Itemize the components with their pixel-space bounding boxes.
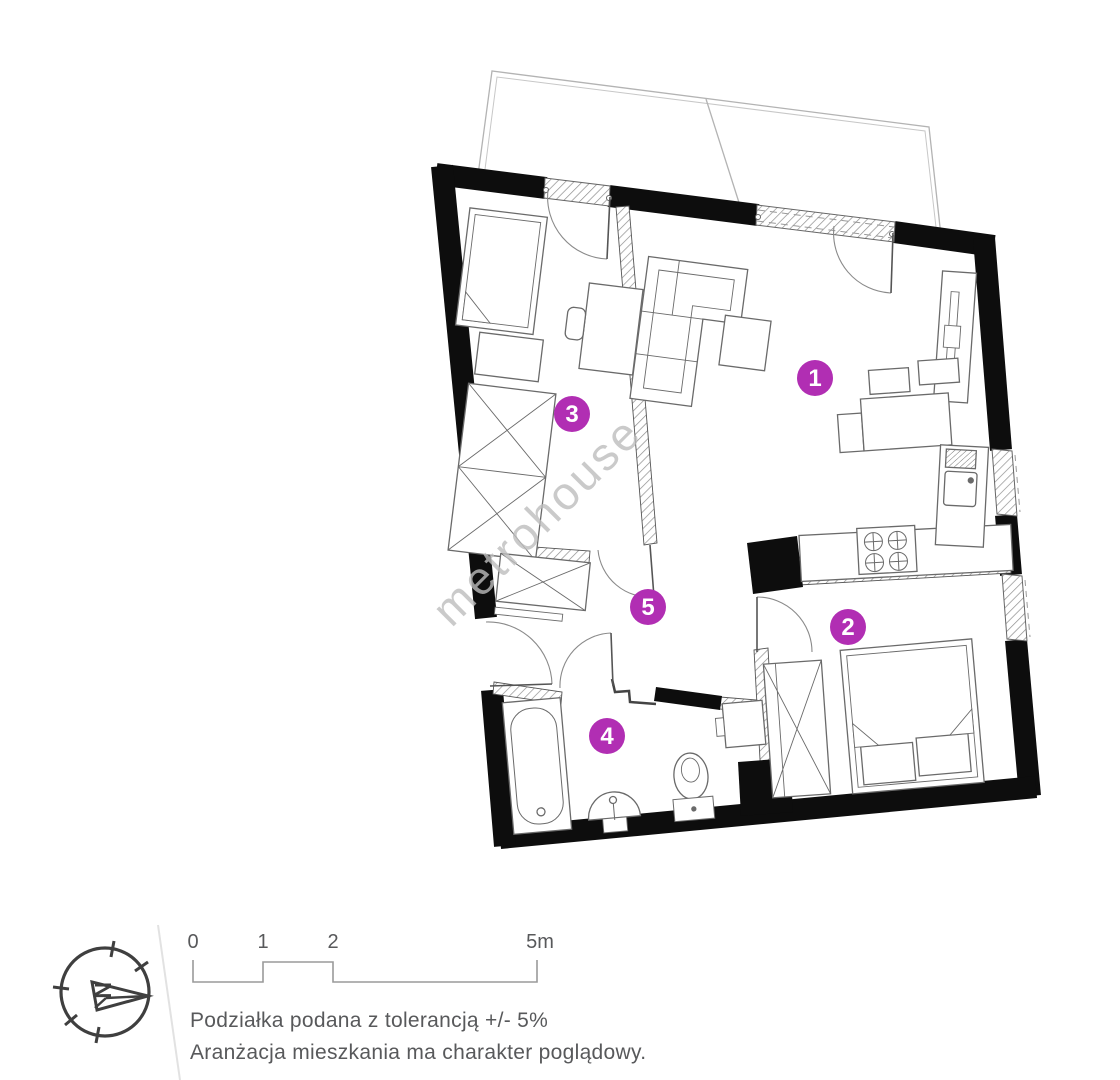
room-1-badge: 1 bbox=[797, 360, 833, 396]
arrangement-note: Aranżacja mieszkania ma charakter pogląd… bbox=[190, 1041, 646, 1064]
pillow bbox=[916, 734, 971, 776]
sink-drainer bbox=[945, 449, 976, 469]
door-arc-bedroom2 bbox=[757, 597, 812, 652]
washing-machine bbox=[714, 700, 766, 748]
dining-chair bbox=[868, 368, 910, 395]
bathtub bbox=[502, 698, 571, 835]
window-kitchen bbox=[992, 449, 1017, 516]
bed-room3 bbox=[456, 208, 548, 335]
room-5-badge: 5 bbox=[630, 589, 666, 625]
svg-text:5: 5 bbox=[641, 594, 654, 621]
toilet bbox=[669, 751, 715, 821]
terrace-divider bbox=[706, 99, 742, 212]
scale-tick-0: 0 bbox=[187, 931, 198, 953]
room-3-badge: 3 bbox=[554, 396, 590, 432]
balcony-slider-room1 bbox=[756, 205, 895, 242]
room-2-badge: 2 bbox=[830, 609, 866, 645]
dining-table bbox=[860, 393, 951, 451]
pillow bbox=[861, 742, 916, 784]
wall-block-bathroom bbox=[654, 687, 722, 710]
svg-text:4: 4 bbox=[600, 723, 614, 750]
terrace-door-room3 bbox=[544, 178, 610, 206]
dining-chair bbox=[837, 413, 864, 453]
door-arc-entrance bbox=[486, 622, 552, 684]
wall-right-upper bbox=[984, 238, 1001, 450]
door-arc-bathroom bbox=[560, 633, 611, 688]
floor-plan-canvas: metrohouse 1 2 3 4 5 bbox=[0, 0, 1120, 1080]
dining-set bbox=[834, 358, 964, 452]
desk-room3 bbox=[561, 281, 643, 375]
window-bedroom2 bbox=[1002, 574, 1027, 641]
tolerance-note: Podziałka podana z tolerancją +/- 5% bbox=[190, 1009, 548, 1032]
wall-block-kitchen bbox=[747, 536, 803, 594]
footer-divider bbox=[158, 925, 180, 1080]
scale-tick-1: 1 bbox=[257, 931, 268, 953]
wall-right-lower bbox=[1016, 640, 1030, 796]
svg-text:3: 3 bbox=[565, 401, 578, 428]
coffee-table bbox=[719, 315, 771, 371]
compass-north-label: N bbox=[90, 982, 116, 999]
desk-chair bbox=[565, 307, 587, 341]
room-4-badge: 4 bbox=[589, 718, 625, 754]
kitchen-sink bbox=[943, 471, 977, 507]
dining-chair bbox=[918, 358, 960, 385]
stove bbox=[857, 525, 917, 574]
svg-text:1: 1 bbox=[808, 365, 821, 392]
scale-tick-2: 2 bbox=[327, 931, 338, 953]
floor-plan-page: metrohouse 1 2 3 4 5 bbox=[0, 0, 1120, 1080]
wall-bathroom-step bbox=[612, 679, 656, 704]
svg-text:2: 2 bbox=[841, 614, 854, 641]
sink-counter bbox=[935, 445, 988, 547]
nightstand-room3 bbox=[475, 332, 544, 381]
wall-top-mid bbox=[609, 196, 758, 215]
scale-tick-5m: 5m bbox=[526, 931, 554, 953]
bed-room2 bbox=[840, 639, 984, 794]
wardrobe-room2 bbox=[763, 660, 830, 798]
scale-bar-line bbox=[193, 960, 537, 982]
scale-bar: 0 1 2 5m bbox=[187, 931, 553, 982]
compass: N bbox=[53, 941, 149, 1043]
